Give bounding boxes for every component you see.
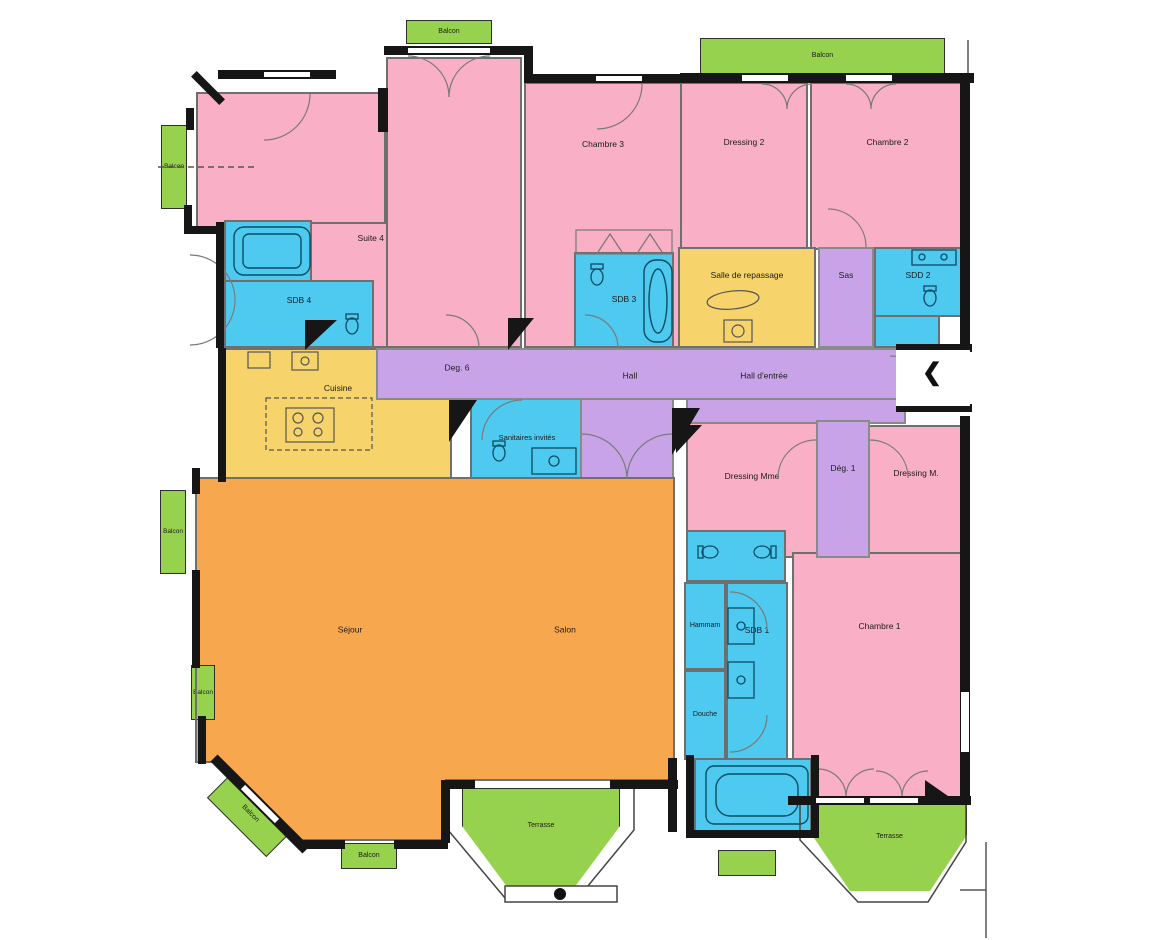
- balcony-label: Balcon: [240, 804, 261, 825]
- entrance-door: ❮: [896, 350, 970, 406]
- room-vestibule: [580, 398, 674, 482]
- terrasse-label: Terrasse: [876, 833, 903, 841]
- room-sas: Sas: [818, 247, 874, 348]
- room-label-sejour: Séjour: [338, 625, 363, 634]
- room-chambre2: Chambre 2: [810, 82, 965, 250]
- room-sdb1: SDB 1: [726, 582, 788, 764]
- room-dressing2: Dressing 2: [680, 82, 808, 250]
- wall-left-7: [198, 716, 206, 764]
- door-gap: [870, 798, 918, 803]
- window-gap: [961, 692, 969, 752]
- room-label-sdb4: SDB 4: [287, 296, 312, 305]
- balcony-label: Balcon: [163, 528, 183, 535]
- room-dressing-m: Dressing M.: [866, 425, 966, 555]
- wall-left-3: [216, 222, 224, 348]
- room-label-sdb1: SDB 1: [745, 626, 770, 635]
- terrasse-left-step: [505, 886, 617, 902]
- room-suite4-bedroom: [196, 92, 386, 230]
- wall-bottom-1: [298, 840, 345, 849]
- room-label-salle-de-repassage: Salle de repassage: [711, 271, 784, 280]
- room-douche: Douche: [684, 670, 726, 760]
- entrance-chevron-icon: ❮: [922, 358, 942, 387]
- wall-left-4: [218, 348, 226, 482]
- room-wc-suite1: [686, 530, 786, 582]
- room-label-hammam: Hammam: [690, 622, 720, 630]
- room-label-deg6: Deg. 6: [444, 363, 469, 372]
- room-label-douche: Douche: [693, 711, 717, 719]
- window-gap: [264, 72, 310, 77]
- room-deg1: Dég. 1: [816, 420, 870, 558]
- room-label-deg1: Dég. 1: [830, 464, 855, 473]
- room-sdb3: SDB 3: [574, 252, 674, 348]
- balcony-left-upper: Balcon: [161, 125, 187, 209]
- room-label-suite4: Suite 4: [358, 234, 384, 243]
- room-label-chambre3: Chambre 3: [582, 140, 624, 149]
- balcony-label: Balcon: [164, 163, 184, 170]
- room-label-sas: Sas: [839, 271, 854, 280]
- wall-right-3: [960, 556, 970, 798]
- room-hall-lower: [686, 398, 906, 424]
- terrasse-label: Terrasse: [528, 822, 555, 830]
- door-gap: [846, 75, 892, 81]
- room-label-sdb3: SDB 3: [612, 295, 637, 304]
- room-label-sdd2: SDD 2: [905, 271, 930, 280]
- wall-bay-left: [686, 755, 694, 835]
- wall-left-6: [192, 570, 200, 668]
- wall-bottom-2: [394, 840, 448, 849]
- room-label-chambre2: Chambre 2: [866, 138, 908, 147]
- wall-left-5: [192, 468, 200, 494]
- window-gap: [408, 48, 490, 53]
- balcony-bottom: Balcon: [341, 843, 397, 869]
- room-suite4-main: [386, 57, 522, 348]
- door-gap: [742, 75, 788, 81]
- room-label-dressing-mme: Dressing Mme: [725, 472, 780, 481]
- wall-right-1: [960, 80, 970, 346]
- wall-bay-right: [811, 755, 819, 835]
- wall-left-1: [186, 108, 194, 130]
- room-label-dressing2: Dressing 2: [724, 138, 765, 147]
- room-sdb4: SDB 4: [224, 280, 374, 348]
- room-label-hall: Hall: [623, 371, 638, 380]
- wall-right-2: [960, 416, 970, 558]
- room-label-chambre1: Chambre 1: [858, 622, 900, 631]
- balcony-label: Balcon: [812, 52, 833, 60]
- room-label-hall-entree: Hall d'entrée: [740, 371, 787, 380]
- room-hall-band: Deg. 6 Hall Hall d'entrée: [376, 348, 906, 400]
- room-label-sanitaires: Sanitaires invités: [499, 434, 556, 442]
- room-hammam: Hammam: [684, 582, 726, 670]
- garden-step: [718, 850, 776, 876]
- terrasse-left: Terrasse: [462, 788, 620, 892]
- room-salle-de-repassage: Salle de repassage: [678, 247, 816, 348]
- wall-pillar-suite4: [378, 88, 388, 132]
- room-label-cuisine: Cuisine: [324, 384, 352, 393]
- wall-bottom-3: [441, 780, 475, 789]
- room-sdb4-tub: [224, 220, 312, 282]
- wall-bottom-3v: [441, 789, 450, 843]
- balcony-top-right: Balcon: [700, 38, 945, 74]
- wall-bay-bottom: [686, 830, 819, 838]
- room-sanitaires-invites: Sanitaires invités: [470, 396, 584, 480]
- wall-top-e: [680, 73, 974, 83]
- terrasse-left-dot: [554, 888, 566, 900]
- balcony-left-lower: Balcon: [191, 665, 215, 720]
- terrasse-right: Terrasse: [812, 803, 967, 895]
- door-gap: [816, 798, 864, 803]
- balcony-label: Balcon: [358, 852, 379, 860]
- room-sdd2: SDD 2: [874, 247, 962, 317]
- room-label-dressing-m: Dressing M.: [893, 469, 938, 478]
- room-label-salon: Salon: [554, 625, 576, 634]
- balcony-top-left: Balcon: [406, 20, 492, 44]
- balcony-label: Balcon: [193, 689, 213, 696]
- balcony-left-middle: Balcon: [160, 490, 186, 574]
- window-gap: [596, 76, 642, 81]
- balcony-label: Balcon: [438, 28, 459, 36]
- floor-plan: Suite 4 Chambre 3 Dressing 2 Chambre 2 D…: [0, 0, 1172, 940]
- wall-bottom-5: [668, 758, 677, 832]
